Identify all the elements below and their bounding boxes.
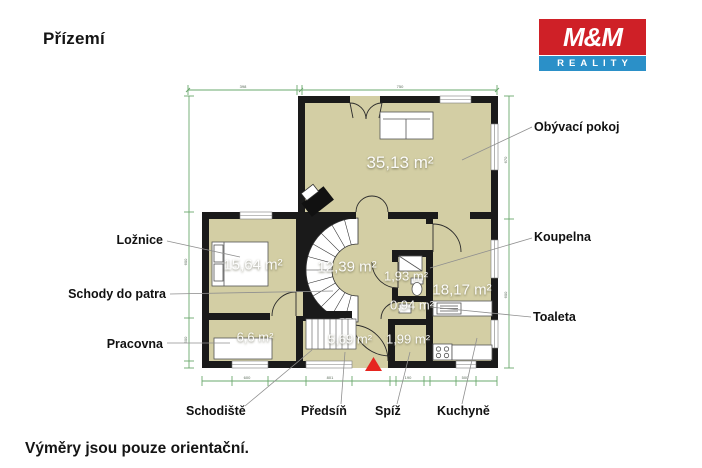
svg-text:600: 600 <box>503 291 508 298</box>
floorplan-drawing: 398 750 600 801 190 500 600 500 670 600 <box>0 0 702 468</box>
area-loznice: 15,64 m² <box>223 257 282 274</box>
kitchen-counter <box>452 345 492 360</box>
label-spiz: Spíž <box>375 404 401 418</box>
svg-text:398: 398 <box>240 84 247 89</box>
svg-text:600: 600 <box>183 258 188 265</box>
label-predsin: Předsíň <box>301 404 347 418</box>
area-pracovna: 6,6 m² <box>237 330 274 345</box>
label-kuchyne: Kuchyně <box>437 404 490 418</box>
area-hala: 12,39 m² <box>317 259 376 276</box>
svg-text:750: 750 <box>397 84 404 89</box>
svg-text:190: 190 <box>405 375 412 380</box>
area-kuchyne: 18,17 m² <box>432 282 491 299</box>
area-toaleta: 0,94 m² <box>390 298 434 313</box>
svg-text:801: 801 <box>327 375 334 380</box>
sofa <box>380 112 433 139</box>
label-pracovna: Pracovna <box>107 337 163 351</box>
svg-text:670: 670 <box>503 156 508 163</box>
label-obyvaci-pokoj: Obývací pokoj <box>534 120 619 134</box>
svg-text:600: 600 <box>244 375 251 380</box>
svg-text:500: 500 <box>183 336 188 343</box>
label-loznice: Ložnice <box>116 233 163 247</box>
area-koupelna: 1,93 m² <box>384 269 428 284</box>
floorplan-page: Přízemí M&M REALITY <box>0 0 702 468</box>
label-schodiste: Schodiště <box>186 404 246 418</box>
area-spiz: 1,99 m² <box>386 332 430 347</box>
label-toaleta: Toaleta <box>533 310 576 324</box>
area-obyvaci-pokoj: 35,13 m² <box>366 153 433 173</box>
area-predsin: 5,69 m² <box>328 332 372 347</box>
stove <box>433 344 452 360</box>
footnote: Výměry jsou pouze orientační. <box>25 440 249 458</box>
label-schody-do-patra: Schody do patra <box>68 287 166 301</box>
label-koupelna: Koupelna <box>534 230 591 244</box>
